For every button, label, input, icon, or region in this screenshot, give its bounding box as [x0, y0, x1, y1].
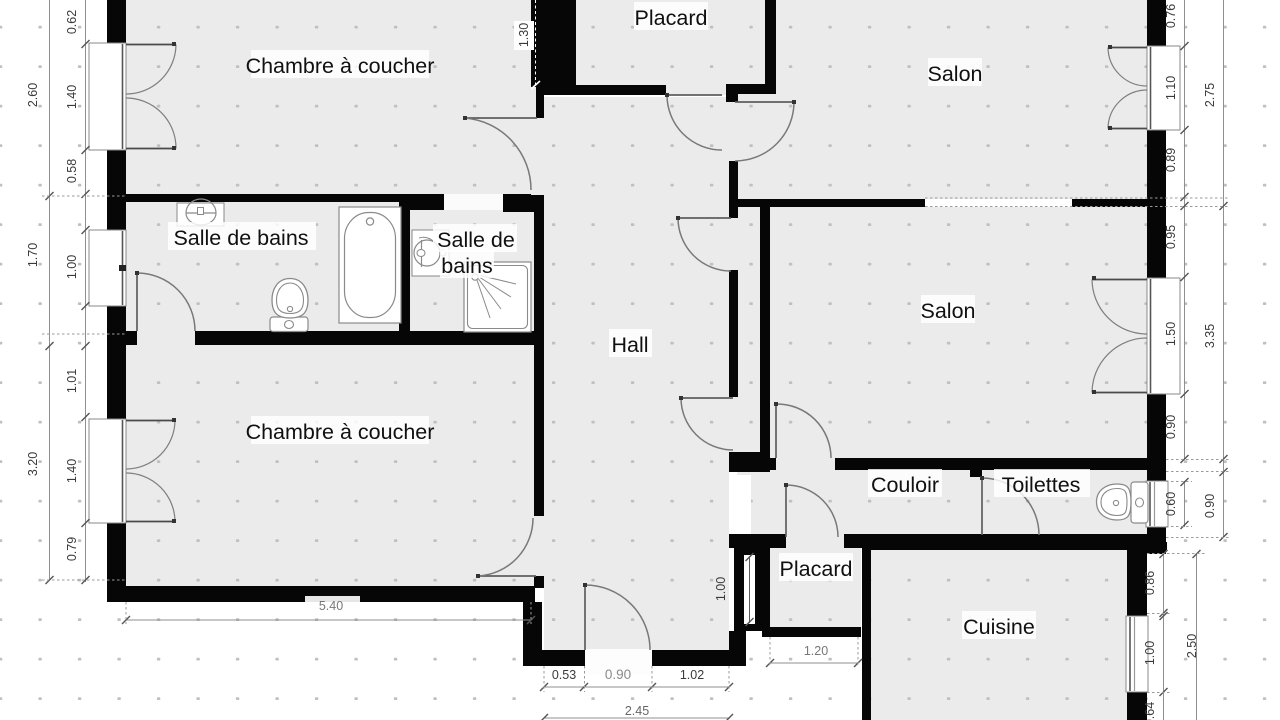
svg-text:1.02: 1.02	[680, 668, 704, 682]
svg-text:Placard: Placard	[635, 6, 708, 30]
svg-text:Salon: Salon	[921, 299, 976, 323]
svg-text:0.64: 0.64	[1143, 702, 1157, 720]
svg-text:Chambre à coucher: Chambre à coucher	[246, 420, 435, 444]
svg-text:0.86: 0.86	[1143, 571, 1157, 595]
svg-text:0.58: 0.58	[65, 159, 79, 183]
svg-text:5.40: 5.40	[319, 599, 343, 613]
svg-text:0.89: 0.89	[1164, 148, 1178, 172]
svg-text:Salle de bains: Salle de bains	[173, 226, 308, 250]
svg-text:1.30: 1.30	[517, 23, 531, 47]
svg-text:1.10: 1.10	[1164, 76, 1178, 100]
svg-text:1.00: 1.00	[1143, 641, 1157, 665]
svg-text:Toilettes: Toilettes	[1002, 473, 1081, 497]
svg-text:1.00: 1.00	[65, 255, 79, 279]
svg-text:1.40: 1.40	[65, 85, 79, 109]
svg-text:1.20: 1.20	[804, 644, 828, 658]
svg-text:0.62: 0.62	[65, 10, 79, 34]
svg-text:0.90: 0.90	[605, 667, 631, 682]
svg-text:Couloir: Couloir	[871, 473, 939, 497]
svg-text:1.70: 1.70	[26, 243, 40, 267]
svg-text:Placard: Placard	[780, 557, 853, 581]
svg-text:0.95: 0.95	[1164, 225, 1178, 249]
svg-text:Salon: Salon	[928, 62, 983, 86]
svg-text:0.60: 0.60	[1164, 492, 1178, 516]
svg-text:1.01: 1.01	[65, 369, 79, 393]
svg-text:Cuisine: Cuisine	[963, 615, 1035, 639]
svg-text:bains: bains	[441, 254, 492, 278]
svg-text:1.40: 1.40	[65, 459, 79, 483]
svg-text:2.45: 2.45	[625, 704, 649, 718]
svg-text:2.60: 2.60	[26, 83, 40, 107]
svg-text:2.50: 2.50	[1185, 634, 1199, 658]
svg-text:0.79: 0.79	[65, 537, 79, 561]
svg-text:0.76: 0.76	[1164, 4, 1178, 28]
svg-text:0.90: 0.90	[1203, 494, 1217, 518]
svg-text:1.00: 1.00	[714, 577, 728, 601]
svg-text:3.20: 3.20	[26, 452, 40, 476]
svg-text:0.53: 0.53	[552, 668, 576, 682]
svg-text:0.90: 0.90	[1164, 415, 1178, 439]
svg-text:1.50: 1.50	[1164, 322, 1178, 346]
svg-text:3.35: 3.35	[1203, 324, 1217, 348]
svg-text:Hall: Hall	[611, 333, 648, 357]
svg-text:Salle de: Salle de	[437, 228, 515, 252]
svg-text:Chambre à coucher: Chambre à coucher	[246, 54, 435, 78]
svg-text:2.75: 2.75	[1203, 83, 1217, 107]
